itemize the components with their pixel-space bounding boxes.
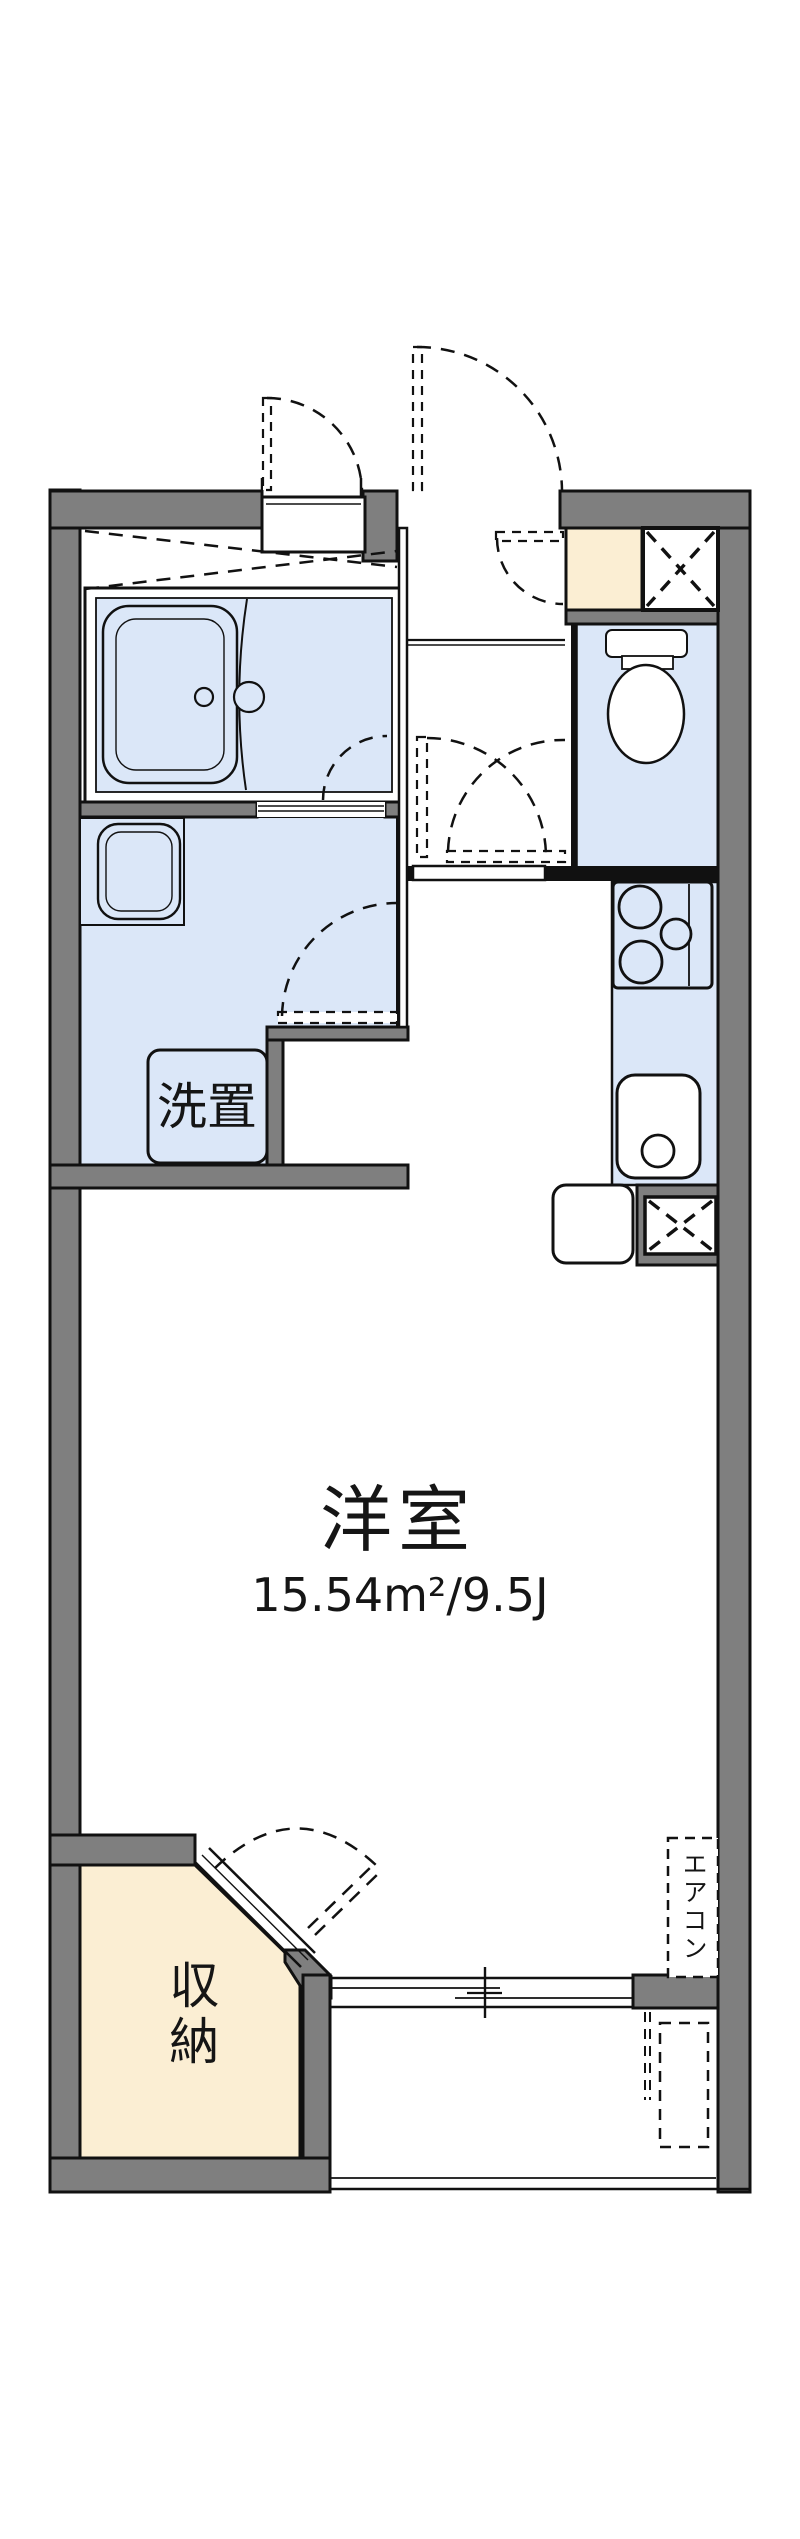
aircon-label: エアコン bbox=[680, 1851, 706, 1963]
entrance-door-arc bbox=[417, 347, 562, 490]
sink-faucet-icon bbox=[642, 1135, 674, 1167]
wall-left bbox=[50, 490, 80, 2192]
floor-plan-page: 洗置 洋室 15.54m²/9.5J 収納 エアコン bbox=[0, 0, 800, 2539]
wall-nook-left bbox=[267, 1040, 283, 1165]
hall-door-leaf-vertical bbox=[417, 737, 427, 857]
stove-burner-1 bbox=[619, 886, 661, 928]
wall-room-top bbox=[50, 1165, 408, 1188]
corridor-threshold-frame bbox=[413, 866, 545, 880]
wall-bath-washroom-left bbox=[80, 802, 257, 817]
refrigerator-space bbox=[553, 1185, 633, 1263]
alcove-dashed-2 bbox=[85, 551, 397, 589]
utility-door-arc bbox=[267, 398, 362, 491]
bath-faucet-icon bbox=[234, 682, 264, 712]
main-room-area-label: 15.54m²/9.5J bbox=[251, 1571, 548, 1619]
bathroom-door-opening bbox=[257, 802, 385, 817]
washroom-door-leaf bbox=[278, 1012, 397, 1023]
entrance-door-leaf bbox=[413, 347, 422, 490]
wall-nook-top bbox=[267, 1027, 408, 1040]
hall-door-leaf-horizontal bbox=[447, 851, 565, 862]
main-room-label: 洋室 bbox=[320, 1483, 476, 1559]
wall-toilet-left bbox=[571, 624, 577, 867]
storage-door-arc bbox=[215, 1828, 377, 1868]
stove-burner-3 bbox=[661, 919, 691, 949]
floor-plan-drawing bbox=[0, 0, 800, 2539]
wall-storage-bottom bbox=[50, 2158, 330, 2192]
wall-right bbox=[718, 497, 750, 2192]
hall-door-arc-2 bbox=[448, 740, 565, 851]
storage-door-leaf-1 bbox=[308, 1864, 374, 1928]
stove-burner-2 bbox=[620, 941, 662, 983]
storage-door-leaf-2 bbox=[315, 1871, 381, 1935]
shoe-door-leaf bbox=[496, 532, 563, 541]
toilet-bowl-icon bbox=[608, 665, 684, 763]
shoe-cabinet-icon bbox=[566, 528, 642, 610]
hall-door-arc-1 bbox=[427, 738, 546, 857]
storage-label: 収納 bbox=[164, 1959, 217, 2071]
wall-storage-top bbox=[50, 1835, 195, 1865]
utility-door-frame bbox=[262, 497, 365, 552]
washbasin-icon bbox=[98, 824, 180, 919]
washing-machine-label: 洗置 bbox=[157, 1081, 257, 1134]
wall-top-a bbox=[50, 491, 262, 528]
wall-top-b bbox=[363, 491, 397, 561]
toilet-tank-icon bbox=[606, 630, 687, 657]
utility-door-leaf bbox=[263, 398, 271, 490]
wall-window-right bbox=[633, 1975, 718, 2008]
wall-top-c bbox=[560, 491, 750, 528]
shoe-door-arc bbox=[497, 538, 563, 604]
wall-corridor-left bbox=[399, 528, 407, 1027]
bath-drain-icon bbox=[195, 688, 213, 706]
